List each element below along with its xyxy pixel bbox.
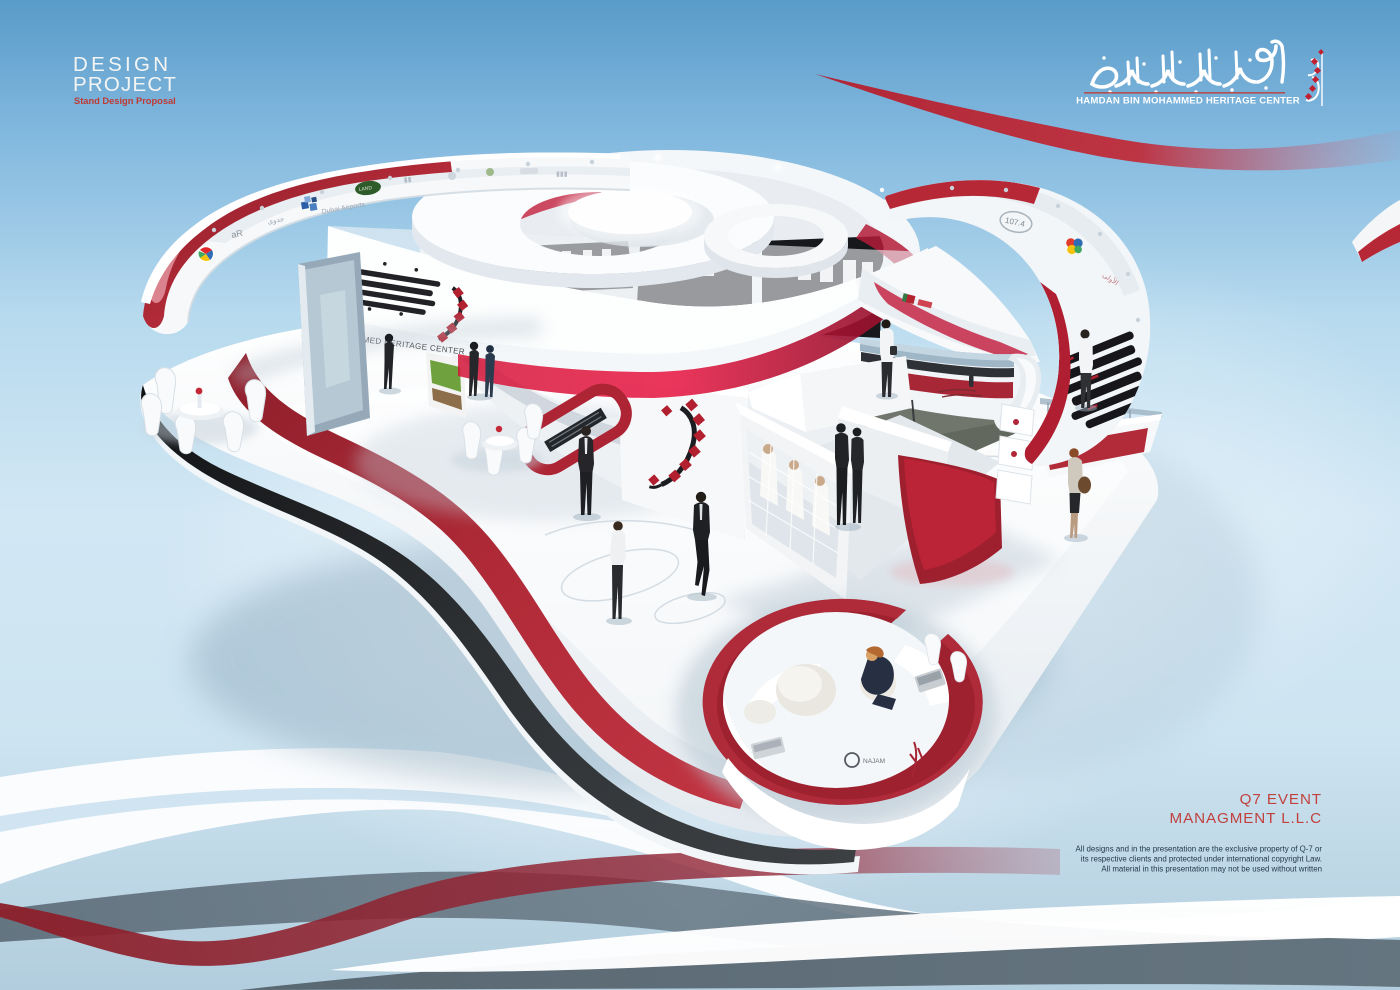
svg-text:▮▮▮: ▮▮▮ bbox=[556, 171, 568, 178]
svg-text:NAJAM: NAJAM bbox=[863, 758, 885, 765]
svg-text:All material in this presentat: All material in this presentation may no… bbox=[1101, 865, 1322, 874]
svg-text:its respective clients and pro: its respective clients and protected und… bbox=[1081, 855, 1322, 864]
svg-text:Stand Design Proposal: Stand Design Proposal bbox=[74, 96, 176, 106]
svg-text:MANAGMENT L.L.C: MANAGMENT L.L.C bbox=[1170, 810, 1322, 827]
svg-text:HAMDAN BIN MOHAMMED HERITAGE C: HAMDAN BIN MOHAMMED HERITAGE CENTER bbox=[1076, 96, 1300, 107]
svg-text:PROJECT: PROJECT bbox=[73, 73, 177, 96]
svg-text:▮▮: ▮▮ bbox=[403, 176, 412, 184]
svg-text:Q7 EVENT: Q7 EVENT bbox=[1240, 791, 1322, 808]
svg-text:All designs and in the present: All designs and in the presentation are … bbox=[1075, 845, 1322, 854]
